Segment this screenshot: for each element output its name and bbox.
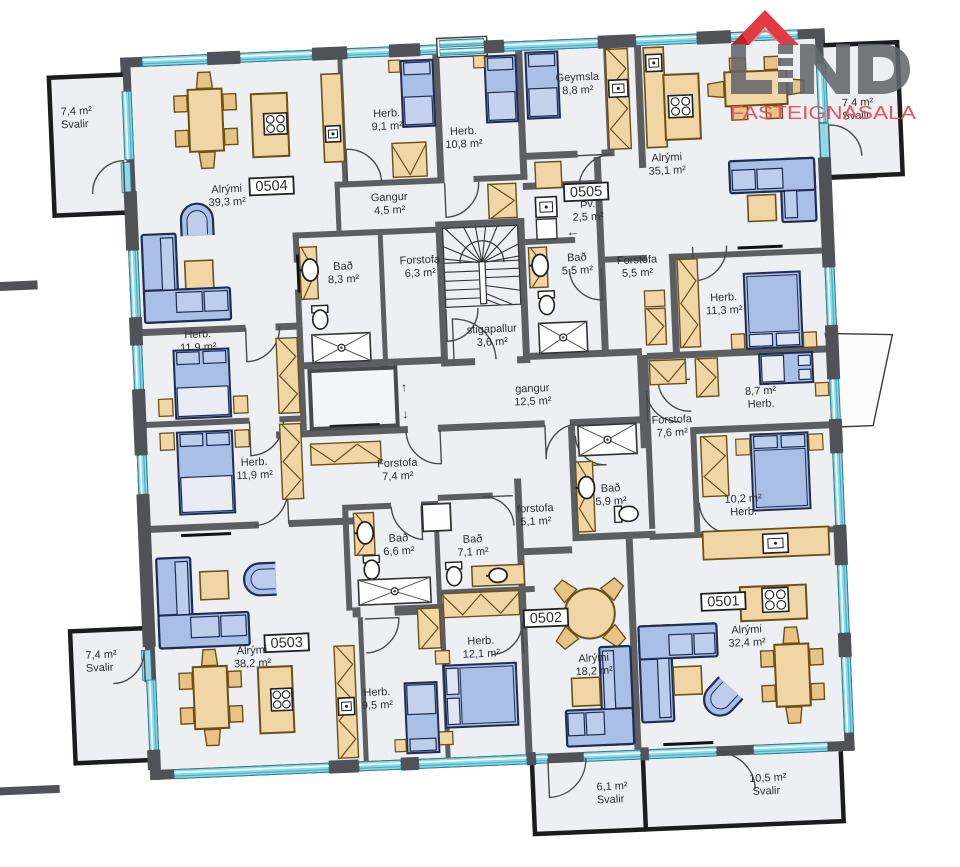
svg-text:0503: 0503 (270, 635, 303, 652)
svg-text:9,1 m²: 9,1 m² (371, 120, 403, 133)
svg-text:Forstofa: Forstofa (651, 413, 693, 427)
svg-text:Alrými: Alrými (211, 183, 242, 196)
svg-text:Herb.: Herb. (450, 125, 477, 138)
svg-text:11,3 m²: 11,3 m² (706, 304, 743, 318)
svg-text:Svalir: Svalir (86, 662, 114, 675)
svg-text:forstofa: forstofa (517, 502, 555, 516)
svg-text:Þv.: Þv. (580, 198, 596, 211)
svg-text:Bað: Bað (333, 260, 353, 273)
svg-text:Alrými: Alrými (237, 644, 268, 657)
svg-text:Herb.: Herb. (240, 456, 267, 469)
svg-text:5,5 m²: 5,5 m² (562, 264, 594, 277)
svg-text:Forstofa: Forstofa (399, 253, 441, 267)
svg-text:4,5 m²: 4,5 m² (374, 204, 406, 217)
svg-text:7,4 m²: 7,4 m² (85, 648, 117, 661)
svg-text:Herb.: Herb. (747, 398, 774, 411)
svg-text:8,8 m²: 8,8 m² (562, 84, 594, 97)
svg-text:39,3 m²: 39,3 m² (208, 196, 246, 210)
svg-text:Herb.: Herb. (710, 291, 737, 304)
svg-text:7,1 m²: 7,1 m² (457, 546, 489, 559)
svg-text:6,3 m²: 6,3 m² (405, 267, 437, 280)
svg-text:Forstofa: Forstofa (377, 457, 419, 471)
svg-text:32,4 m²: 32,4 m² (728, 636, 766, 650)
svg-text:6,1 m²: 6,1 m² (596, 780, 628, 793)
svg-text:Herb.: Herb. (363, 686, 390, 699)
svg-text:0504: 0504 (255, 178, 288, 195)
svg-text:5,9 m²: 5,9 m² (595, 495, 627, 508)
svg-text:12,5 m²: 12,5 m² (514, 395, 552, 409)
svg-text:35,1 m²: 35,1 m² (648, 164, 686, 178)
svg-text:Alrými: Alrými (731, 623, 762, 636)
svg-text:Svalir: Svalir (61, 118, 89, 131)
svg-text:FASTEIGNASALA: FASTEIGNASALA (730, 103, 916, 123)
svg-text:Gangur: Gangur (371, 191, 408, 205)
svg-text:6,6 m²: 6,6 m² (383, 545, 415, 558)
svg-text:11,9 m²: 11,9 m² (236, 469, 273, 483)
svg-text:gangur: gangur (515, 382, 550, 395)
svg-text:Geymsla: Geymsla (555, 71, 600, 85)
svg-text:5,5 m²: 5,5 m² (622, 267, 654, 280)
svg-text:11,9 m²: 11,9 m² (180, 341, 217, 355)
svg-text:stigapallur: stigapallur (466, 322, 517, 336)
svg-text:Svalir: Svalir (597, 793, 625, 806)
svg-text:Bað: Bað (601, 482, 621, 495)
svg-text:7,6 m²: 7,6 m² (656, 426, 688, 439)
svg-text:3,6 m²: 3,6 m² (477, 336, 509, 349)
svg-text:18,2 m²: 18,2 m² (575, 665, 613, 679)
svg-text:Herb.: Herb. (184, 328, 211, 341)
svg-text:↓: ↓ (402, 407, 409, 421)
svg-text:Bað: Bað (463, 533, 483, 546)
svg-text:8,7 m²: 8,7 m² (745, 385, 777, 398)
svg-text:38,2 m²: 38,2 m² (234, 657, 272, 671)
svg-text:←: ← (566, 224, 580, 240)
svg-text:Herb.: Herb. (730, 505, 757, 518)
svg-text:Bað: Bað (388, 532, 408, 545)
svg-text:Alrými: Alrými (651, 151, 682, 164)
svg-text:9,5 m²: 9,5 m² (362, 699, 394, 712)
svg-text:10,2 m²: 10,2 m² (724, 492, 762, 506)
svg-text:5,1 m²: 5,1 m² (520, 515, 552, 528)
svg-text:Bað: Bað (567, 251, 587, 264)
svg-text:0501: 0501 (707, 593, 740, 610)
svg-text:10,5 m²: 10,5 m² (749, 771, 787, 785)
svg-text:Herb.: Herb. (467, 635, 494, 648)
svg-text:Forstofa: Forstofa (617, 253, 659, 267)
svg-text:8,3 m²: 8,3 m² (328, 273, 360, 286)
svg-text:7,4 m²: 7,4 m² (60, 105, 92, 118)
svg-text:7,4 m²: 7,4 m² (382, 470, 414, 483)
svg-text:↑: ↑ (401, 380, 408, 394)
svg-text:12,1 m²: 12,1 m² (463, 647, 501, 661)
svg-text:10,8 m²: 10,8 m² (445, 138, 483, 152)
svg-text:2,5 m²: 2,5 m² (572, 211, 604, 224)
svg-text:Alrými: Alrými (578, 652, 609, 665)
svg-text:Herb.: Herb. (373, 107, 400, 120)
svg-text:0502: 0502 (529, 610, 562, 627)
svg-text:Svalir: Svalir (752, 785, 780, 798)
